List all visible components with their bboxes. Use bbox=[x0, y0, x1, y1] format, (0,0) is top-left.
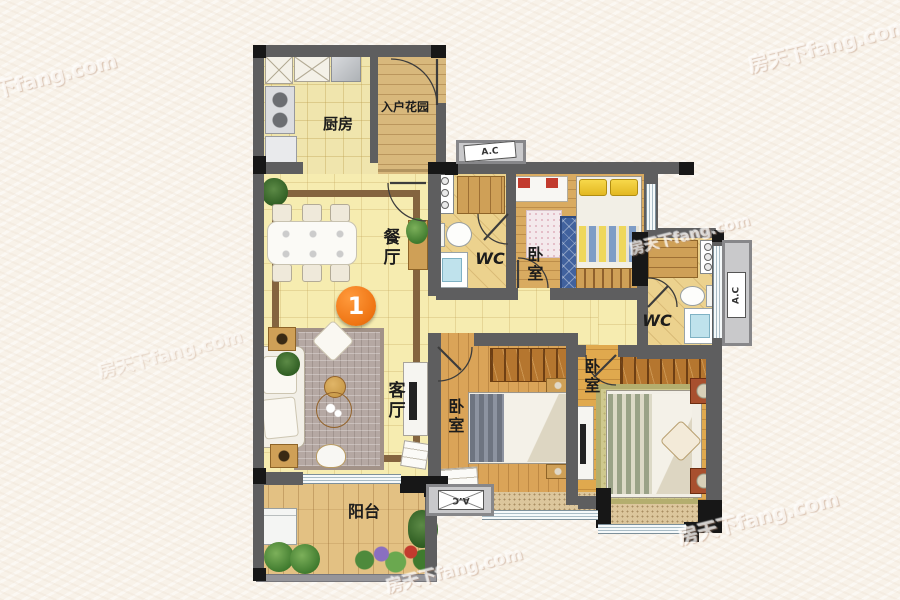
room-label-bedroom-master: 卧室 bbox=[581, 350, 599, 404]
watermark: 房天下fang.com bbox=[745, 10, 900, 78]
watermarks-layer: 房天下fang.com 房天下fang.com 房天下fang.com 房天下f… bbox=[0, 0, 900, 600]
room-label-bedroom-top: 卧室 bbox=[524, 238, 542, 292]
room-label-wc-top: WC bbox=[468, 250, 512, 268]
room-label-bedroom-middle: 卧室 bbox=[445, 390, 463, 444]
room-label-kitchen: 厨房 bbox=[310, 116, 366, 133]
watermark: 房天下fang.com bbox=[675, 482, 842, 550]
room-label-balcony: 阳台 bbox=[338, 503, 390, 521]
watermark: 房天下fang.com bbox=[95, 322, 245, 383]
watermark: 房天下fang.com bbox=[627, 209, 752, 259]
room-label-wc-side: WC bbox=[636, 312, 678, 330]
room-label-entry-garden: 入户花园 bbox=[372, 101, 438, 115]
room-label-dining: 餐厅 bbox=[379, 221, 399, 275]
watermark: 房天下fang.com bbox=[0, 44, 120, 112]
room-label-living: 客厅 bbox=[384, 374, 404, 428]
watermark: 房天下fang.com bbox=[383, 539, 525, 597]
floor-plan-canvas: A.C A.C A.C 厨房 入户花园 餐厅 客厅 阳台 WC WC 卧室 卧室… bbox=[0, 0, 900, 600]
unit-marker-badge[interactable]: 1 bbox=[336, 286, 376, 326]
